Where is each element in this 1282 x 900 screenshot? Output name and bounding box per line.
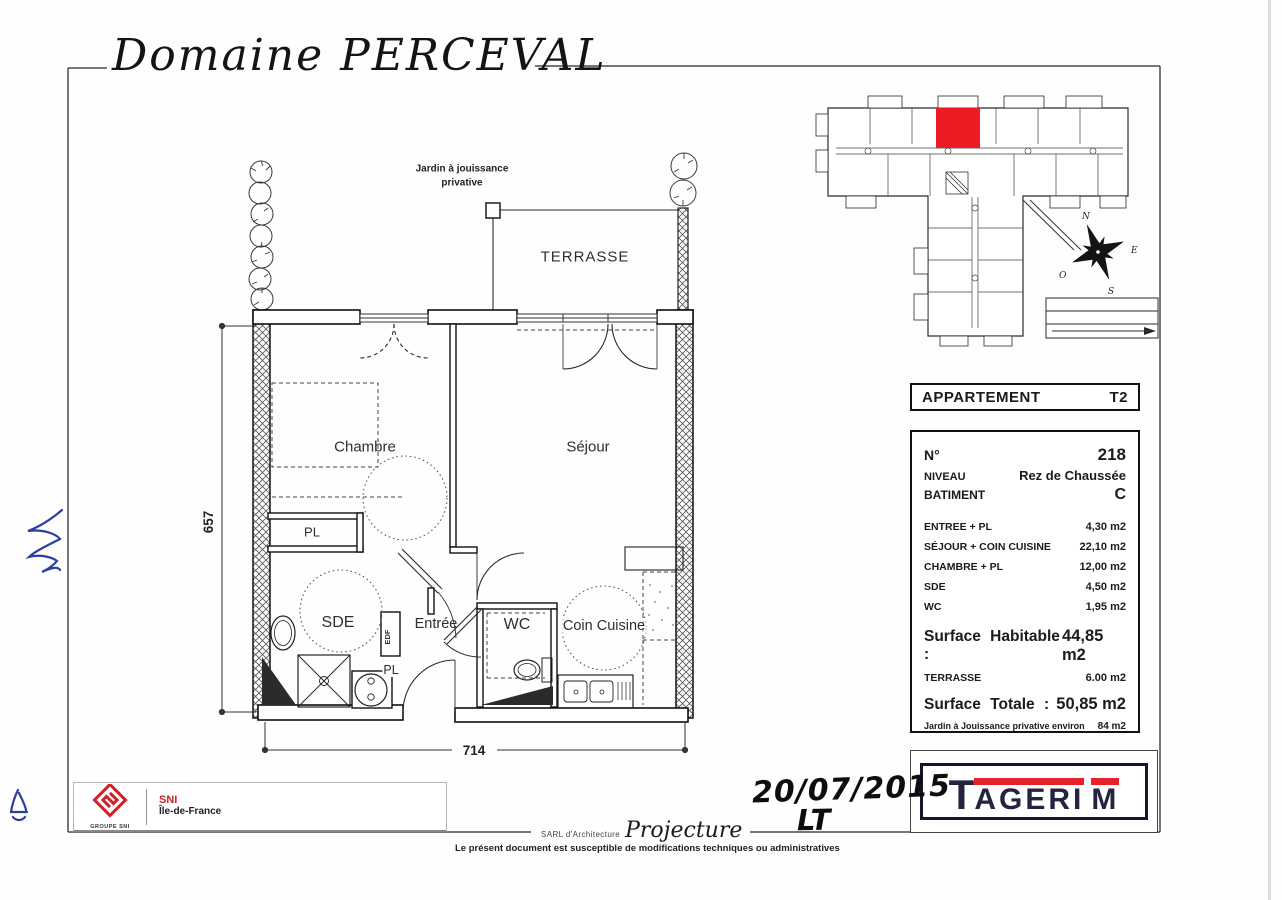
area-value: 6.00 m2 bbox=[1086, 672, 1126, 684]
dimension-width-label: 714 bbox=[463, 743, 486, 758]
jardin-row: Jardin à Jouissance privative environ 84… bbox=[924, 721, 1126, 732]
detail-value: 218 bbox=[1098, 445, 1126, 465]
tagerim-letter-m: M bbox=[1091, 778, 1119, 812]
total-value: 44,85 m2 bbox=[1062, 627, 1126, 665]
surface-totale-row: Surface Totale : 50,85 m2 bbox=[924, 695, 1126, 714]
room-label-sde: SDE bbox=[322, 614, 355, 632]
key-plan: N E S O bbox=[816, 96, 1158, 346]
architecture-firm-signature: SARL d'Architecture Projecture bbox=[533, 818, 750, 843]
compass-rose: N E S O bbox=[1059, 212, 1138, 297]
room-label-terrasse: TERRASSE bbox=[541, 249, 630, 266]
tagerim-letter-t: T bbox=[949, 778, 975, 812]
total-value: 50,85 m2 bbox=[1056, 695, 1126, 714]
area-label: SÉJOUR + COIN CUISINE bbox=[924, 541, 1051, 553]
room-label-coin-cuisine: Coin Cuisine bbox=[561, 618, 647, 634]
dimension-height-label: 657 bbox=[201, 511, 216, 534]
jardin-label-line2: privative bbox=[441, 178, 482, 189]
compass-label-s: S bbox=[1108, 287, 1114, 297]
area-value: 4,30 m2 bbox=[1086, 521, 1126, 533]
sni-logo-box: GROUPE SNI SNI Île-de-France bbox=[73, 782, 447, 832]
compass-label-e: E bbox=[1130, 246, 1138, 256]
tagerim-letters-mid: AGERI bbox=[974, 778, 1084, 812]
floor-plan-linework: 657 714 EDF bbox=[201, 153, 697, 758]
total-label: Surface Totale : bbox=[924, 696, 1049, 714]
apartment-header-box: APPARTEMENT T2 bbox=[910, 383, 1140, 411]
area-value: 4,50 m2 bbox=[1086, 581, 1126, 593]
surface-habitable-row: Surface Habitable : 44,85 m2 bbox=[924, 627, 1126, 665]
detail-label: N° bbox=[924, 447, 940, 463]
footer-disclaimer: Le présent document est susceptible de m… bbox=[455, 843, 840, 854]
detail-row-level: NIVEAU Rez de Chaussée bbox=[924, 468, 1126, 483]
tagerim-logo: T AGERI M bbox=[920, 763, 1148, 820]
compass-label-o: O bbox=[1059, 271, 1067, 281]
area-value: 12,00 m2 bbox=[1080, 561, 1126, 573]
compass-label-n: N bbox=[1081, 212, 1091, 222]
scan-edge-artifact bbox=[1268, 0, 1271, 900]
detail-label: NIVEAU bbox=[924, 471, 966, 483]
detail-row-building: BATIMENT C bbox=[924, 486, 1126, 504]
firm-name: Projecture bbox=[625, 818, 742, 843]
room-label-chambre: Chambre bbox=[334, 439, 396, 456]
area-row: ENTREE + PL 4,30 m2 bbox=[924, 521, 1126, 533]
jardin-label: Jardin à Jouissance privative environ bbox=[924, 721, 1085, 731]
apartment-header-label: APPARTEMENT bbox=[922, 389, 1041, 406]
apartment-type: T2 bbox=[1109, 389, 1128, 406]
area-row: CHAMBRE + PL 12,00 m2 bbox=[924, 561, 1126, 573]
firm-prefix: SARL d'Architecture bbox=[541, 830, 620, 839]
apartment-info-box: N° 218 NIVEAU Rez de Chaussée BATIMENT C… bbox=[910, 430, 1140, 733]
area-value: 22,10 m2 bbox=[1080, 541, 1126, 553]
area-row: WC 1,95 m2 bbox=[924, 601, 1126, 613]
area-label: TERRASSE bbox=[924, 672, 981, 684]
area-label: CHAMBRE + PL bbox=[924, 561, 1003, 573]
area-label: ENTREE + PL bbox=[924, 521, 992, 533]
room-label-pl-entree: PL bbox=[382, 663, 399, 677]
room-label-wc: WC bbox=[504, 616, 531, 634]
detail-value: C bbox=[1114, 486, 1126, 504]
page-title: Domaine PERCEVAL bbox=[112, 30, 607, 81]
area-row: SDE 4,50 m2 bbox=[924, 581, 1126, 593]
sni-diamond-icon bbox=[90, 784, 130, 818]
total-label: Surface Habitable : bbox=[924, 628, 1062, 664]
room-label-edf: EDF bbox=[383, 629, 392, 644]
red-unit-marker bbox=[936, 108, 980, 148]
detail-row-number: N° 218 bbox=[924, 445, 1126, 465]
jardin-value: 84 m2 bbox=[1098, 721, 1126, 732]
detail-label: BATIMENT bbox=[924, 488, 985, 502]
sni-region: Île-de-France bbox=[159, 807, 221, 818]
terrasse-row: TERRASSE 6.00 m2 bbox=[924, 672, 1126, 684]
jardin-label-line1: Jardin à jouissance bbox=[416, 164, 509, 175]
handwritten-initials: LT bbox=[797, 803, 831, 838]
handwritten-date: 20/07/2015 bbox=[751, 769, 951, 811]
area-row: SÉJOUR + COIN CUISINE 22,10 m2 bbox=[924, 541, 1126, 553]
area-label: SDE bbox=[924, 581, 946, 593]
area-value: 1,95 m2 bbox=[1086, 601, 1126, 613]
sni-group-label: GROUPE SNI bbox=[74, 824, 146, 830]
area-label: WC bbox=[924, 601, 942, 613]
blue-ink-scribbles bbox=[11, 510, 62, 820]
sni-logo: GROUPE SNI bbox=[74, 784, 146, 830]
divider bbox=[146, 789, 147, 825]
room-label-sejour: Séjour bbox=[566, 439, 609, 456]
detail-value: Rez de Chaussée bbox=[1019, 468, 1126, 483]
scanned-floor-plan-page: 657 714 EDF bbox=[0, 0, 1282, 900]
room-label-entree: Entrée bbox=[415, 616, 458, 632]
room-label-pl-chambre: PL bbox=[304, 525, 320, 540]
